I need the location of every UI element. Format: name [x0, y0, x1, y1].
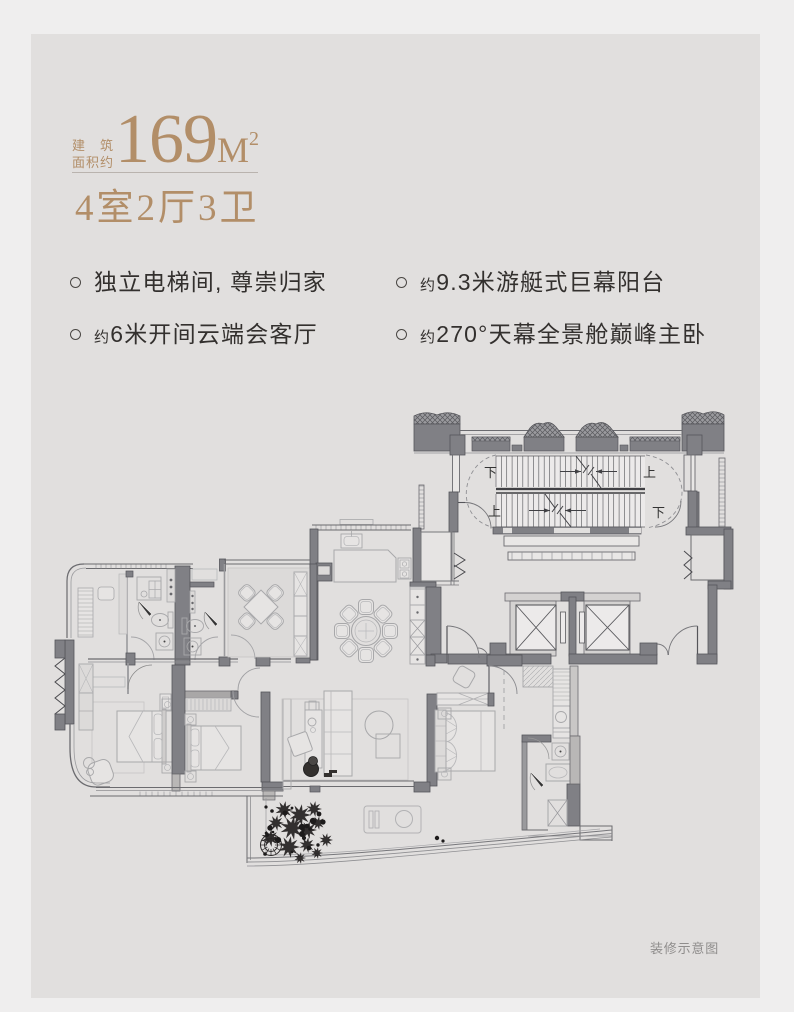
svg-text:下: 下: [484, 465, 497, 480]
svg-text:上: 上: [643, 465, 656, 480]
svg-text:下: 下: [652, 505, 665, 520]
svg-text:上: 上: [488, 504, 501, 519]
